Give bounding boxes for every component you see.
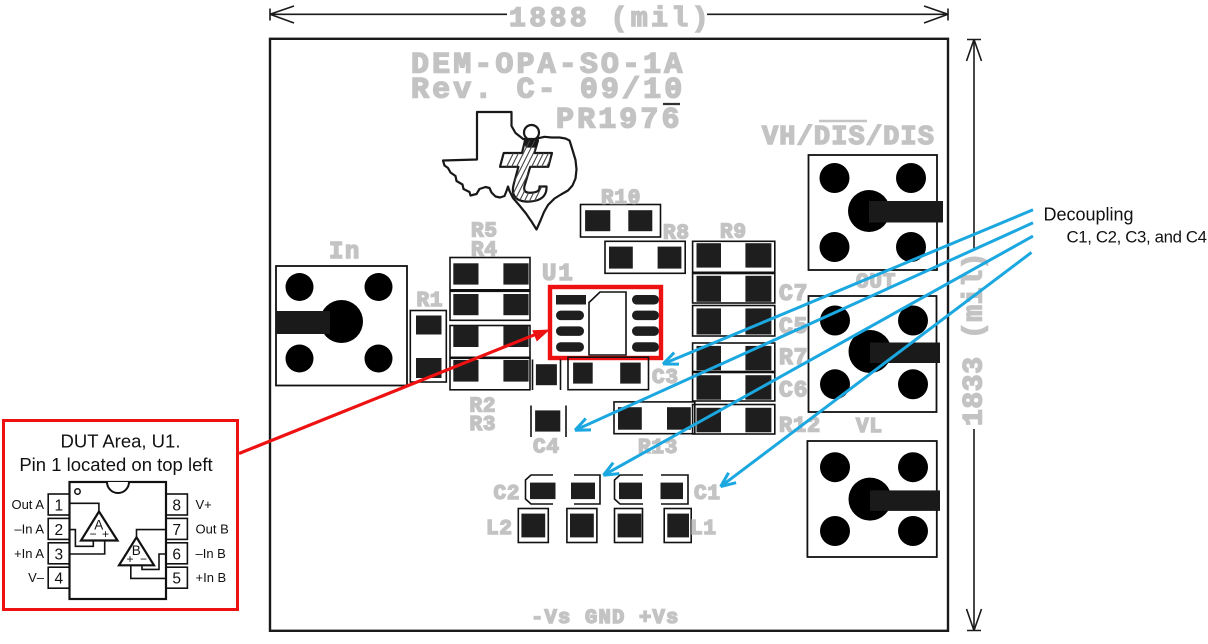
svg-text:8: 8 [172,498,181,515]
svg-text:5: 5 [172,571,181,588]
svg-text:R9: R9 [720,222,747,245]
svg-text:R1: R1 [417,290,444,313]
svg-text:C6: C6 [779,378,808,404]
svg-text:R4: R4 [471,239,498,262]
svg-text:+In B: +In B [196,570,227,585]
svg-text:6: 6 [172,546,181,563]
svg-text:In: In [329,239,361,266]
svg-text:−: − [89,527,96,541]
svg-text:C4: C4 [533,436,560,459]
svg-text:+In A: +In A [14,546,44,561]
svg-text:R13: R13 [638,437,678,460]
svg-text:Out B: Out B [196,521,229,536]
svg-text:Rev. C- 09/10: Rev. C- 09/10 [411,74,685,108]
svg-text:R8: R8 [663,223,690,246]
svg-text:–In A: –In A [14,521,44,536]
svg-text:Pin 1 located on top left: Pin 1 located on top left [19,454,212,475]
svg-text:PR1976: PR1976 [556,104,683,138]
svg-text:DUT Area, U1.: DUT Area, U1. [61,431,181,452]
svg-text:VH/DIS/DIS: VH/DIS/DIS [762,123,935,153]
svg-text:1888 (mil): 1888 (mil) [509,4,712,35]
svg-text:-Vs GND +Vs: -Vs GND +Vs [531,607,680,630]
svg-text:V–: V– [28,570,45,585]
svg-text:Out A: Out A [11,497,44,512]
svg-text:7: 7 [172,522,181,539]
svg-text:C2: C2 [494,483,521,506]
svg-text:C7: C7 [779,281,808,307]
svg-text:L1: L1 [690,518,717,541]
svg-text:1: 1 [54,498,63,515]
svg-text:+: + [126,552,133,566]
svg-text:U1: U1 [542,261,575,288]
svg-text:VL: VL [856,416,883,439]
svg-text:C1: C1 [694,483,721,506]
svg-text:3: 3 [54,546,63,563]
svg-text:C1, C2, C3, and C4: C1, C2, C3, and C4 [1067,228,1207,247]
svg-text:L2: L2 [486,518,513,541]
svg-text:1833 (mil): 1833 (mil) [960,252,991,426]
svg-text:2: 2 [54,522,63,539]
svg-text:R10: R10 [601,188,641,211]
svg-text:R3: R3 [470,414,497,437]
svg-text:+: + [102,527,109,541]
svg-text:−: − [140,552,147,566]
svg-text:R7: R7 [779,345,808,371]
svg-text:4: 4 [54,571,63,588]
svg-text:Decoupling: Decoupling [1044,205,1134,225]
svg-text:V+: V+ [196,497,212,512]
svg-text:–In B: –In B [196,546,226,561]
